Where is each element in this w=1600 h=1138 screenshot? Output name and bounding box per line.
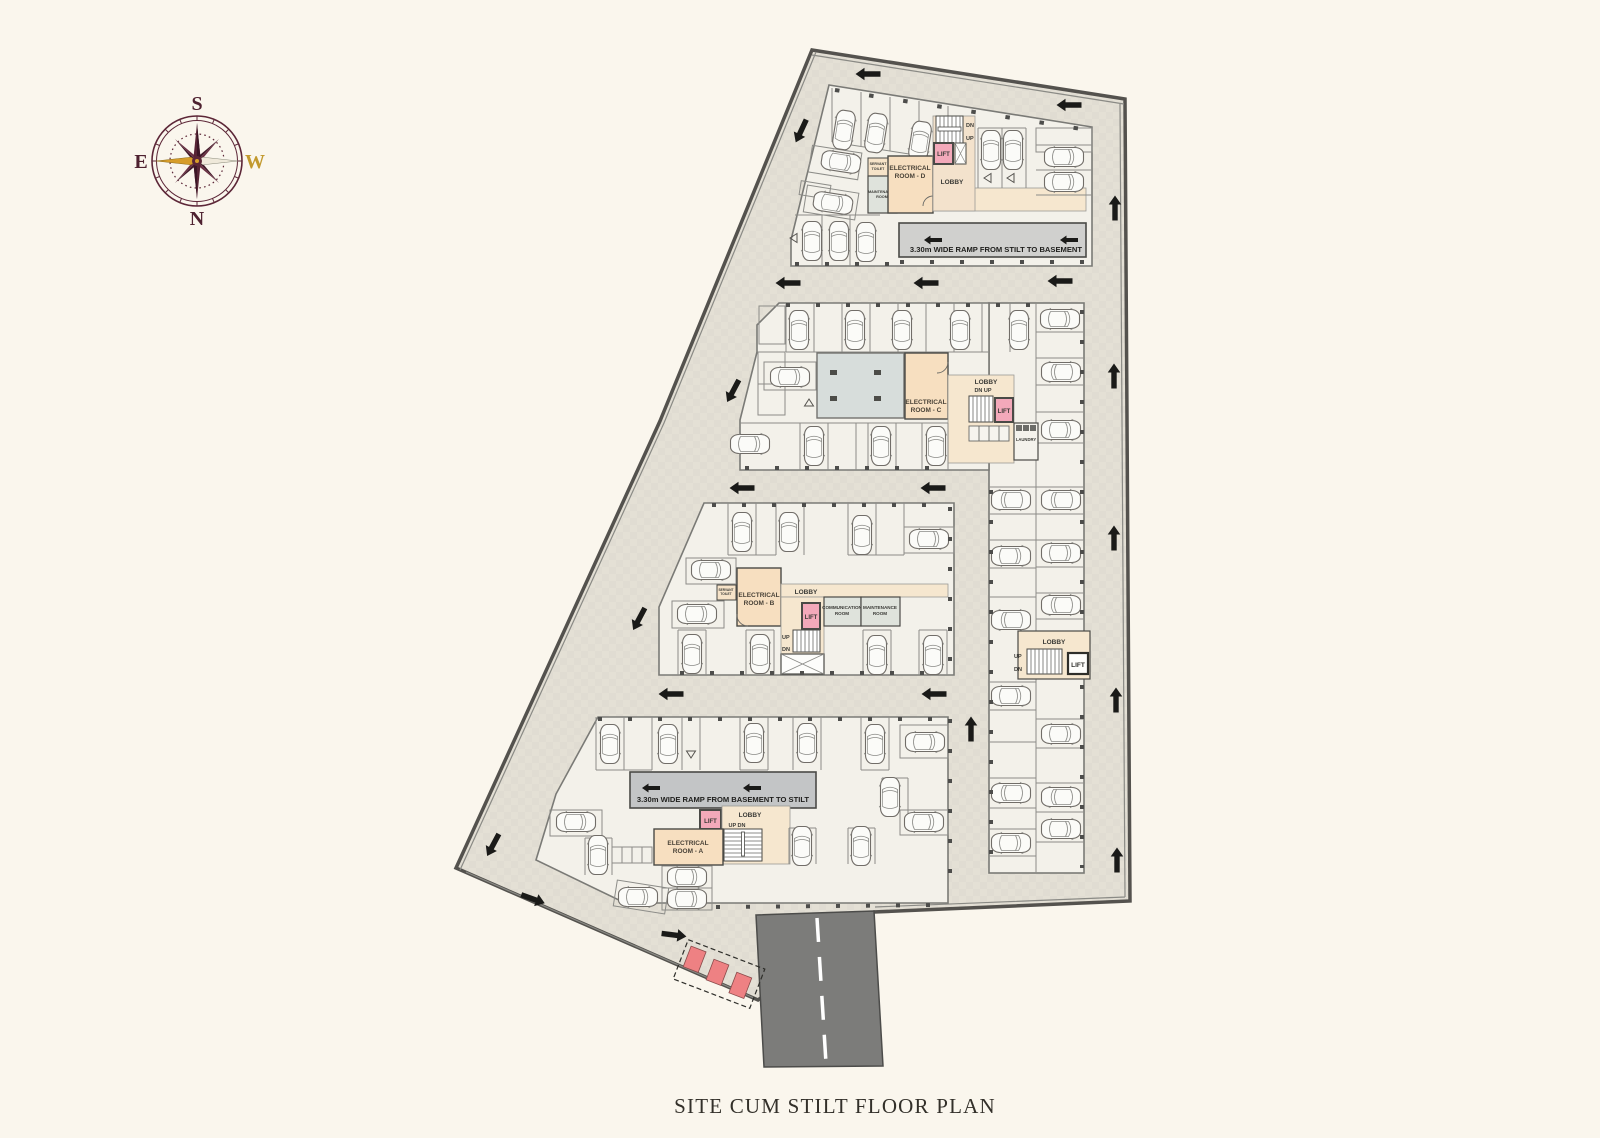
svg-text:LIFT: LIFT xyxy=(998,409,1011,415)
svg-text:MAINTENANCE: MAINTENANCE xyxy=(863,605,897,610)
svg-text:SITE CUM STILT FLOOR PLAN: SITE CUM STILT FLOOR PLAN xyxy=(674,1094,996,1118)
svg-text:COMMUNICATION: COMMUNICATION xyxy=(822,605,862,610)
svg-text:ELECTRICAL: ELECTRICAL xyxy=(905,399,946,406)
svg-text:ROOM: ROOM xyxy=(835,611,849,616)
svg-text:ROOM - B: ROOM - B xyxy=(744,600,775,607)
svg-text:UP DN: UP DN xyxy=(728,823,745,829)
svg-text:3.30m WIDE RAMP FROM STILT TO: 3.30m WIDE RAMP FROM STILT TO BASEMENT xyxy=(910,245,1082,254)
svg-text:LOBBY: LOBBY xyxy=(941,179,964,186)
svg-text:ROOM - A: ROOM - A xyxy=(673,848,704,855)
svg-text:LIFT: LIFT xyxy=(1071,662,1085,669)
svg-text:ELECTRICAL: ELECTRICAL xyxy=(667,840,708,847)
svg-text:N: N xyxy=(190,208,205,230)
svg-text:ROOM: ROOM xyxy=(873,611,887,616)
svg-text:LAUNDRY: LAUNDRY xyxy=(1016,437,1037,442)
svg-text:E: E xyxy=(134,151,147,173)
svg-text:DN: DN xyxy=(1014,667,1022,673)
svg-text:LIFT: LIFT xyxy=(937,152,950,158)
svg-text:UP: UP xyxy=(1014,654,1022,660)
svg-text:LOBBY: LOBBY xyxy=(1043,639,1066,646)
svg-text:LIFT: LIFT xyxy=(704,819,717,825)
svg-text:DN: DN xyxy=(966,123,974,129)
svg-text:W: W xyxy=(245,151,265,173)
svg-text:3.30m WIDE RAMP FROM BASEMENT: 3.30m WIDE RAMP FROM BASEMENT TO STILT xyxy=(637,795,809,804)
svg-text:DN UP: DN UP xyxy=(974,388,991,394)
svg-text:ROOM: ROOM xyxy=(876,195,888,199)
svg-text:LOBBY: LOBBY xyxy=(739,812,762,819)
svg-text:LOBBY: LOBBY xyxy=(975,379,998,386)
svg-text:TOILET: TOILET xyxy=(872,167,886,171)
svg-text:ROOM - C: ROOM - C xyxy=(911,407,942,414)
svg-text:LIFT: LIFT xyxy=(805,615,818,621)
svg-text:S: S xyxy=(191,93,202,115)
svg-text:LOBBY: LOBBY xyxy=(795,589,818,596)
svg-text:TOILET: TOILET xyxy=(720,592,731,596)
svg-text:DN: DN xyxy=(782,647,790,653)
svg-text:ROOM - D: ROOM - D xyxy=(895,173,926,180)
svg-text:UP: UP xyxy=(966,136,974,142)
svg-text:SERVANT: SERVANT xyxy=(870,162,888,166)
svg-text:ELECTRICAL: ELECTRICAL xyxy=(889,165,930,172)
svg-text:UP: UP xyxy=(782,635,790,641)
svg-text:ELECTRICAL: ELECTRICAL xyxy=(738,592,779,599)
